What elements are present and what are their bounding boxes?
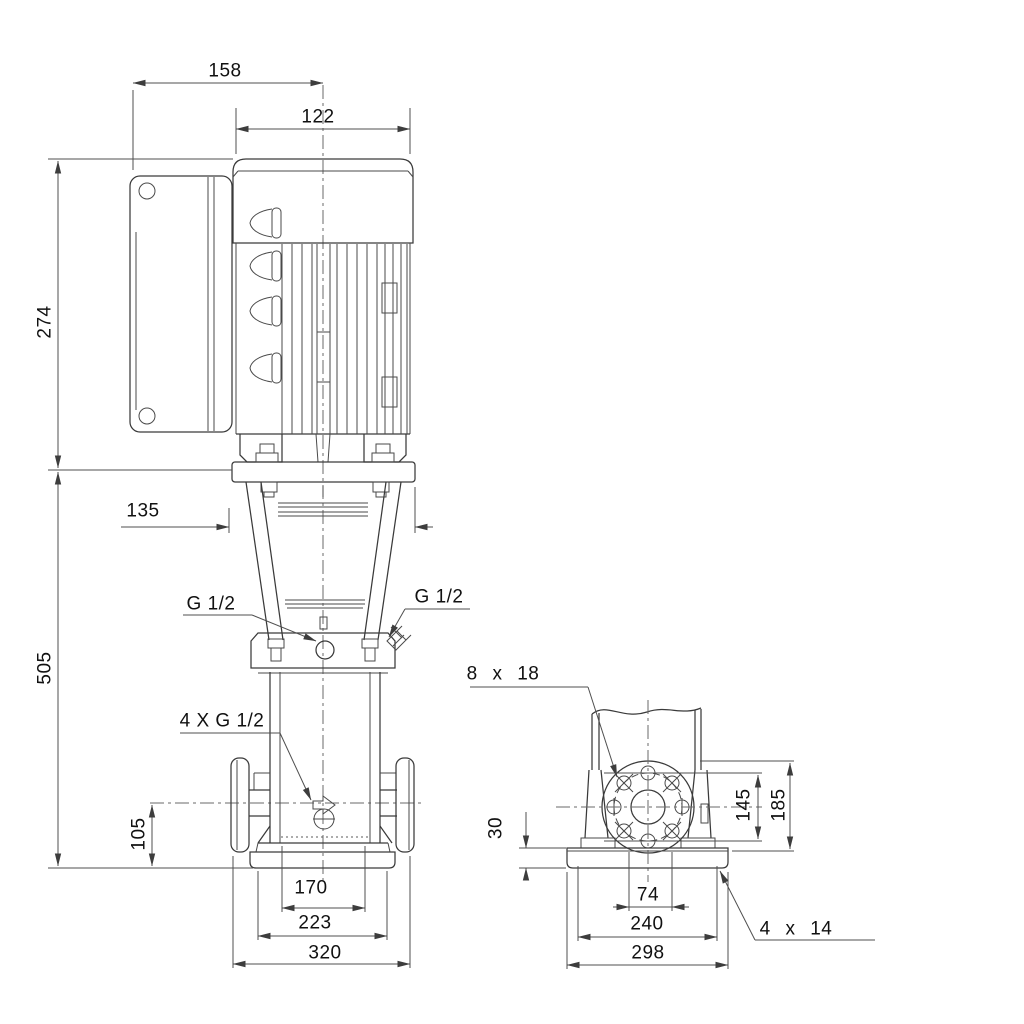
port-flange-face	[556, 700, 762, 882]
terminal-box-screw-bottom	[139, 408, 155, 424]
terminal-box	[130, 176, 281, 432]
terminal-box-screw-top	[139, 183, 155, 199]
motor-side-boss-upper	[382, 283, 397, 313]
dim-label-122: 122	[301, 108, 334, 127]
dim-label-30: 30	[487, 817, 506, 839]
motor-side-boss-lower	[382, 377, 397, 407]
port-flange-left	[231, 758, 249, 852]
pump-dimensional-drawing: 158 122 274 505 135 105 170 223 320 G 1/…	[0, 0, 1024, 1024]
dim-label-74: 74	[637, 886, 659, 905]
dim-label-170: 170	[294, 879, 327, 898]
break-line	[592, 708, 701, 714]
motor-foot-left	[240, 434, 282, 462]
plug-label-g12-left: G 1/2	[187, 595, 236, 614]
cable-glands	[250, 208, 281, 383]
dim-label-240: 240	[630, 915, 663, 934]
dim-label-158: 158	[208, 62, 241, 81]
front-view	[48, 83, 470, 968]
front-dimensions	[48, 83, 470, 968]
dim-label-320: 320	[308, 944, 341, 963]
dim-label-135: 135	[126, 502, 159, 521]
priming-plug-45deg	[387, 626, 411, 650]
plug-label-g12-right: G 1/2	[415, 588, 464, 607]
flange-bolt-right	[372, 444, 394, 497]
dim-label-223: 223	[298, 914, 331, 933]
vent-plug	[316, 641, 334, 659]
port-flange-right	[396, 758, 414, 852]
head-bolt-left	[268, 639, 284, 661]
dim-label-298: 298	[631, 944, 664, 963]
hole-label-4x14: 4 x 14	[760, 920, 833, 939]
dim-label-274: 274	[36, 305, 55, 338]
flange-bolt-left	[256, 444, 278, 497]
head-bolt-right	[362, 639, 378, 661]
dim-label-505: 505	[36, 651, 55, 684]
dim-label-105: 105	[130, 817, 149, 850]
dim-label-185: 185	[770, 788, 789, 821]
drain-plug-symbol	[313, 796, 335, 829]
pump-head	[251, 626, 411, 673]
hole-label-8x18: 8 x 18	[467, 665, 540, 684]
dim-label-145: 145	[735, 788, 754, 821]
motor-foot-right	[364, 434, 406, 462]
plug-label-4xg12: 4 X G 1/2	[180, 712, 265, 731]
